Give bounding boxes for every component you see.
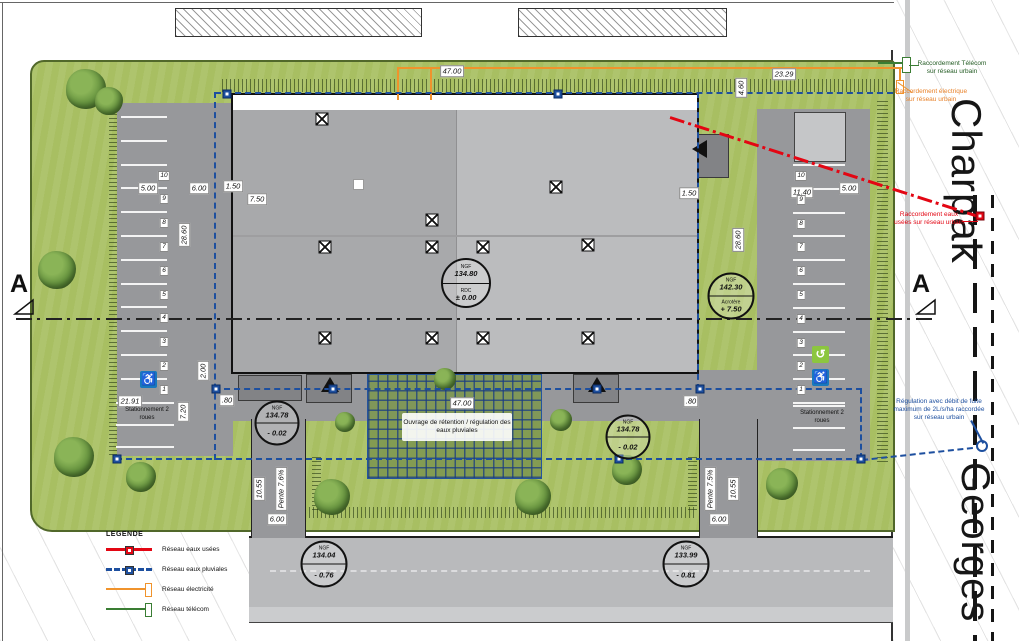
legend-label: Réseau eaux usées (162, 546, 219, 553)
tree (515, 479, 551, 515)
stormwater-line-east (697, 92, 699, 390)
drawing-frame-top (0, 2, 894, 3)
level-value: + 7.50 (720, 306, 741, 314)
tree (766, 468, 798, 500)
level-altitude: 134.04 (313, 552, 336, 560)
roof-vent-icon (582, 332, 595, 345)
level-marker-parvis-west: NGF134.78 - 0.02 (255, 401, 300, 446)
parking-stall-number-east: 4 (797, 314, 806, 324)
stall-line (793, 283, 845, 285)
stormwater-line-west (214, 92, 216, 460)
stall-line (793, 307, 845, 309)
stall-line (793, 449, 845, 451)
level-altitude: 134.80 (455, 270, 478, 278)
legend-item-telecom: Réseau télécom (106, 603, 276, 615)
stall-line (121, 306, 167, 308)
roof-vent-icon (319, 241, 332, 254)
roof-vent-icon (582, 239, 595, 252)
accessible-parking-icon: ♿ (812, 369, 829, 386)
stormwater-line-swatch (106, 563, 152, 575)
stall-line (121, 330, 167, 332)
parking-stall-number-east: 6 (797, 266, 806, 276)
hedge-east (877, 100, 888, 462)
dim-access-east-width: 6.00 (709, 513, 729, 525)
annotation-electricite: Raccordement électrique sur réseau urbai… (893, 88, 969, 104)
electricity-line-swatch (106, 583, 152, 595)
parking-stall-number-west: 3 (160, 337, 169, 347)
dim-north-east-width: 23.29 (772, 68, 796, 80)
parking-stall-number-east: 2 (797, 361, 806, 371)
tree (126, 462, 156, 492)
dim-south-gap-east: .80 (683, 395, 698, 407)
level-marker-road-west: NGF134.04 - 0.76 (301, 541, 348, 588)
level-altitude: 133.99 (675, 552, 698, 560)
dim-access-east-length: 10.55 (727, 477, 739, 501)
dim-west-aisle: 6.00 (189, 182, 209, 194)
stormwater-node (212, 385, 221, 394)
tree (38, 251, 76, 289)
stormwater-node (554, 90, 563, 99)
dim-south-width: 21.91 (118, 395, 142, 407)
roof-vent-icon (426, 332, 439, 345)
dim-east-strip: 1.50 (679, 187, 699, 199)
parking-stall-number-east: 10 (795, 171, 807, 181)
roof-joint-horizontal (233, 235, 697, 237)
level-value: - 0.76 (314, 571, 333, 579)
parking-stall-number-west: 4 (160, 313, 169, 323)
parking-east-platform (794, 112, 846, 162)
main-building (231, 93, 699, 374)
dim-access-west-width: 6.00 (267, 513, 287, 525)
stall-line (793, 331, 845, 333)
parking-stall-number-west: 7 (160, 242, 169, 252)
legend-item-eaux-usees: Réseau eaux usées (106, 543, 276, 555)
parking-stall-number-west: 5 (160, 290, 169, 300)
legend-item-electricite: Réseau électricité (106, 583, 276, 595)
parking-stall-number-west: 1 (160, 385, 169, 395)
roof-panel-west (233, 110, 456, 372)
retention-basin-label: Ouvrage de rétention / régulation des ea… (402, 413, 512, 441)
tree (314, 479, 350, 515)
stall-line (121, 283, 167, 285)
legend-label: Réseau télécom (162, 606, 209, 613)
tree (434, 368, 456, 390)
electricity-line-top (397, 67, 902, 69)
dim-north-east-depth: 4.60 (735, 78, 747, 98)
road-centerline (270, 570, 870, 572)
two-wheeler-parking-label-east: Stationnement 2 roues (796, 410, 848, 426)
hedge-south (305, 507, 697, 518)
annotation-telecom: Raccordement Télécom sur réseau urbain (913, 60, 991, 76)
two-wheeler-parking-label-west: Stationnement 2 roues (118, 407, 176, 423)
parking-stall-number-east: 7 (797, 242, 806, 252)
ev-charging-icon: ↺ (812, 346, 829, 363)
stall-line (793, 427, 845, 429)
stormwater-node (223, 90, 232, 99)
dim-west-setback: 7.50 (247, 193, 267, 205)
sewer-street-connection (976, 212, 985, 221)
dim-east-stall: 5.00 (839, 182, 859, 194)
neighbor-building-east (518, 8, 727, 37)
roof-vent-icon (426, 214, 439, 227)
stall-line (121, 259, 167, 261)
dim-retention-width: 47.00 (450, 397, 474, 409)
stall-line (121, 211, 167, 213)
parking-stall-number-west: 9 (160, 194, 169, 204)
roof-vent-icon (477, 241, 490, 254)
stormwater-drop-east (860, 388, 862, 459)
dim-west-length: 28.60 (178, 223, 190, 247)
section-triangle-east (915, 298, 937, 321)
annotation-eaux-usees: Raccordement eaux usées sur réseau urbai… (891, 211, 967, 227)
street-name-georges: Georges (952, 462, 997, 622)
level-altitude: 142.30 (720, 284, 743, 292)
dim-west-stall: 5.00 (138, 182, 158, 194)
entrance-arrow-side (692, 140, 707, 158)
level-value: - 0.02 (267, 430, 286, 438)
parking-stall-number-east: 3 (797, 338, 806, 348)
telecom-line-swatch (106, 603, 152, 615)
level-value: ± 0.00 (456, 294, 477, 302)
roof-vent-icon (477, 332, 490, 345)
dim-access-west-slope: Pente 7.6% (275, 467, 287, 511)
stormwater-node (329, 385, 338, 394)
roof-panel-east (456, 110, 697, 372)
roof-vent-icon (426, 241, 439, 254)
stall-line (116, 446, 174, 448)
parking-stall-number-west: 2 (160, 361, 169, 371)
stall-line (121, 354, 167, 356)
parking-stall-number-east: 5 (797, 290, 806, 300)
drawing-frame-left (2, 2, 3, 641)
south-sidewalk (249, 607, 893, 623)
dim-east-length: 28.60 (732, 228, 744, 252)
stall-line (793, 235, 845, 237)
dim-south-depth: 7.20 (177, 402, 189, 422)
stall-line (793, 259, 845, 261)
stormwater-node (593, 385, 602, 394)
stormwater-node (113, 455, 122, 464)
hedge-access-east (688, 456, 697, 510)
dim-building-width: 47.00 (440, 65, 464, 77)
parking-stall-number-west: 8 (160, 218, 169, 228)
level-marker-acrotere: NGF142.30 Acrotère+ 7.50 (708, 273, 755, 320)
tree (550, 409, 572, 431)
tree (95, 87, 123, 115)
stall-line (121, 235, 167, 237)
building-north-canopy (233, 95, 697, 111)
level-altitude: 134.78 (266, 411, 289, 419)
dim-south-offset: 2.00 (197, 361, 209, 381)
dim-west-strip: 1.50 (223, 180, 243, 192)
legend: LEGENDE Réseau eaux usées Réseau eaux pl… (106, 531, 276, 623)
roof-joint-vertical (456, 110, 458, 372)
parking-stall-number-east: 8 (797, 219, 806, 229)
stall-line (116, 424, 174, 426)
stall-line (121, 116, 167, 118)
stall-line (121, 140, 167, 142)
dim-access-west-length: 10.55 (253, 477, 265, 501)
stormwater-line-inner-south (214, 388, 862, 390)
roof-access-hatch (353, 179, 364, 190)
stormwater-line-south (116, 458, 862, 460)
roof-vent-icon (550, 181, 563, 194)
level-altitude: 134.78 (617, 425, 640, 433)
legend-title: LEGENDE (106, 531, 276, 538)
tree (335, 412, 355, 432)
stormwater-node (857, 455, 866, 464)
legend-item-eaux-pluviales: Réseau eaux pluviales (106, 563, 276, 575)
telecom-line-top (878, 62, 902, 64)
stormwater-node (696, 385, 705, 394)
roof-vent-icon (316, 113, 329, 126)
roof-vent-icon (319, 332, 332, 345)
annotation-regulation: Régulation avec débit de fuite maximum d… (893, 398, 985, 422)
electricity-drop-2 (430, 67, 432, 100)
street-name-charpak: Charpak (942, 98, 990, 264)
neighbor-building-west (175, 8, 422, 37)
level-marker-rdc: NGF134.80 RDC± 0.00 (441, 258, 491, 308)
section-triangle-west (13, 298, 35, 321)
accessible-parking-icon: ♿ (140, 371, 157, 388)
sewer-line-swatch (106, 543, 152, 555)
level-marker-road-east: NGF133.99 - 0.81 (663, 541, 710, 588)
dim-south-gap-west: .80 (219, 394, 234, 406)
level-value: - 0.02 (618, 444, 637, 452)
stall-line (793, 405, 845, 407)
level-marker-parvis-east: NGF134.78 - 0.02 (606, 415, 651, 460)
section-marker-west: A (10, 272, 28, 297)
parking-stall-number-east: 1 (797, 385, 806, 395)
legend-label: Réseau électricité (162, 586, 214, 593)
legend-label: Réseau eaux pluviales (162, 566, 227, 573)
stall-line (121, 164, 167, 166)
site-plan: Ouvrage de rétention / régulation des ea… (0, 0, 1019, 641)
dim-access-east-slope: Pente 7.5% (704, 467, 716, 511)
stall-line (793, 212, 845, 214)
electricity-drop-1 (397, 67, 399, 100)
parking-stall-number-west: 10 (158, 171, 170, 181)
tree (54, 437, 94, 477)
stall-line (793, 402, 845, 404)
parking-stall-number-west: 6 (160, 266, 169, 276)
level-value: - 0.81 (676, 571, 695, 579)
parking-stall-number-east: 9 (797, 195, 806, 205)
section-marker-east: A (912, 272, 930, 297)
